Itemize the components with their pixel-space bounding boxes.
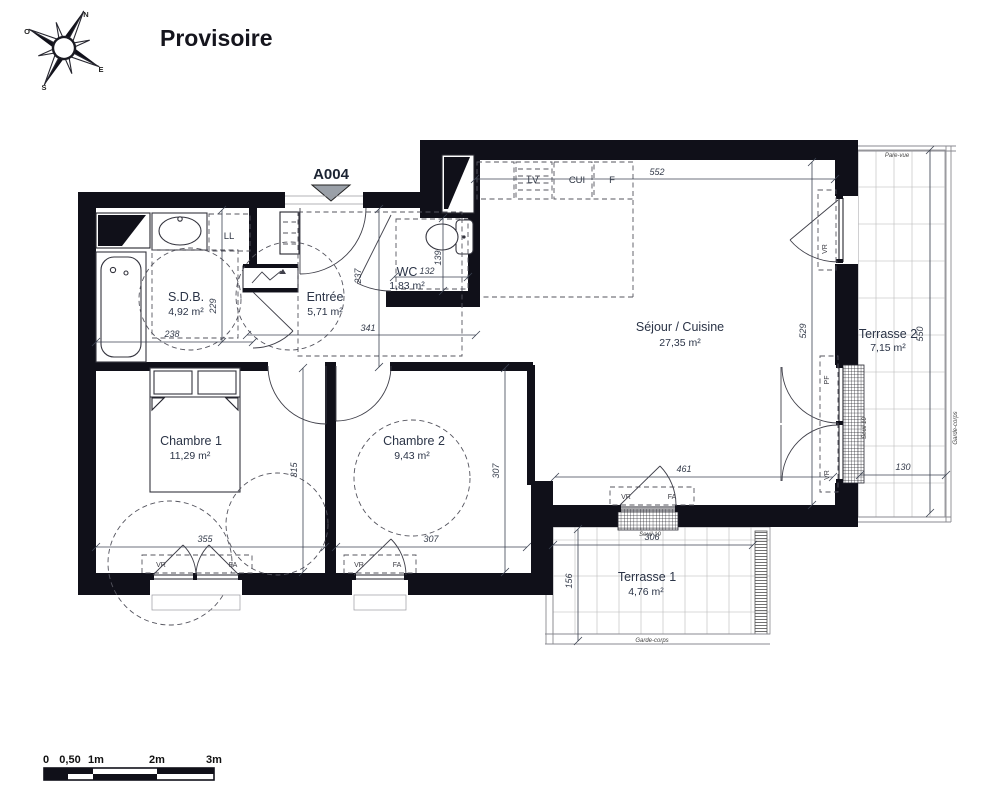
pf-label-bottom: VR [824,470,831,480]
dim-entree-width: 341 [360,323,375,333]
seuil-label-terrasse2: Seuil 10 [862,416,868,438]
room-wc-area: 1,83 m² [389,280,425,292]
room-sejour-name: Séjour / Cuisine [636,320,724,334]
room-entree-area: 5,71 m² [307,306,343,318]
compass-icon: N O E S [9,0,119,104]
compass-east-label: E [98,65,103,74]
electrical-panel [243,264,298,292]
chambre2-window-vr-label: VR [354,562,364,569]
fridge-label: F [609,175,615,186]
scale-2m: 2m [149,754,165,766]
dim-sdb-height: 229 [208,298,218,314]
compass-west-label: O [24,27,30,36]
cooker-label: CUI [569,175,585,186]
room-terrasse1-name: Terrasse 1 [618,570,676,584]
chambre2-window-fa-label: FA [393,562,402,569]
scale-bar: 0 0,50 1m 2m 3m [43,754,222,780]
room-entree-name: Entrée [307,290,344,304]
sejour-window-upper-right: VR [790,190,858,270]
scale-0: 0 [43,754,49,766]
room-terrasse2-name: Terrasse 2 [859,327,917,341]
chambre2-window: VR FA [344,539,416,610]
dim-chambre1-width: 355 [197,534,213,544]
washing-machine-label: LL [224,231,235,242]
dim-terrasse2-height: 550 [915,326,925,341]
entry-closet [280,212,299,254]
sejour-window-vr-label: VR [621,494,631,501]
dim-wc-height: 139 [433,250,443,265]
room-chambre1-name: Chambre 1 [160,434,222,448]
dim-terrasse1-height: 156 [564,573,574,588]
upper-window-vr-label: VR [822,244,829,254]
room-sdb-area: 4,92 m² [168,306,204,318]
sdb-door [253,292,293,348]
washing-machine: LL [209,214,250,251]
garde-corps-label-terrasse2: Garde-corps [953,411,959,444]
duct-shaft-wc [442,155,474,213]
compass-south-label: S [41,83,46,92]
scale-05: 0,50 [59,754,80,766]
chambre2-door [336,366,391,421]
scale-3m: 3m [206,754,222,766]
room-chambre1-area: 11,29 m² [170,450,211,462]
dishwasher-label: LV [528,175,540,186]
dim-chambre2-width: 307 [423,534,439,544]
duct-shaft-sdb [96,213,150,248]
scale-1m: 1m [88,754,104,766]
pf-label-top: PF [824,376,831,385]
unit-label: A004 [313,166,350,183]
dim-kitchen-width: 552 [649,167,664,177]
dim-wc-width: 132 [419,266,434,276]
chambre1-window: VR FA [142,545,252,610]
compass-north-label: N [83,10,88,19]
dim-terrasse2-width: 130 [895,462,910,472]
pare-vue-label: Pare-vue [885,153,910,159]
entrance-door [285,196,366,274]
sink-vanity [152,213,207,250]
chambre1-door [268,366,326,424]
floor-plan: Provisoire N O E S A004 [0,0,990,800]
dim-entree-height: 237 [353,268,363,285]
dim-chambre1-height: 315 [289,462,299,478]
dim-terrasse1-width: 306 [644,532,659,542]
page-title: Provisoire [160,25,273,51]
room-chambre2-name: Chambre 2 [383,434,445,448]
room-sejour-area: 27,35 m² [659,337,701,349]
room-terrasse2-area: 7,15 m² [870,342,906,354]
bed [150,368,240,492]
kitchen-counter: LV CUI F [477,162,633,297]
toilet [426,220,473,254]
garde-corps-rail-right [755,531,767,634]
dim-sejour-width: 461 [676,464,691,474]
dim-chambre2-height: 307 [491,463,501,479]
sejour-french-door-terrasse2: PF VR Seuil 10 [781,356,868,492]
dim-sdb-width: 238 [163,329,179,339]
bathtub [96,252,146,362]
room-terrasse1-area: 4,76 m² [628,586,664,598]
garde-corps-label-terrasse1: Garde-corps [635,638,668,644]
room-chambre2-area: 9,43 m² [394,450,430,462]
room-sdb-name: S.D.B. [168,290,204,304]
dim-sejour-height: 529 [798,323,808,338]
